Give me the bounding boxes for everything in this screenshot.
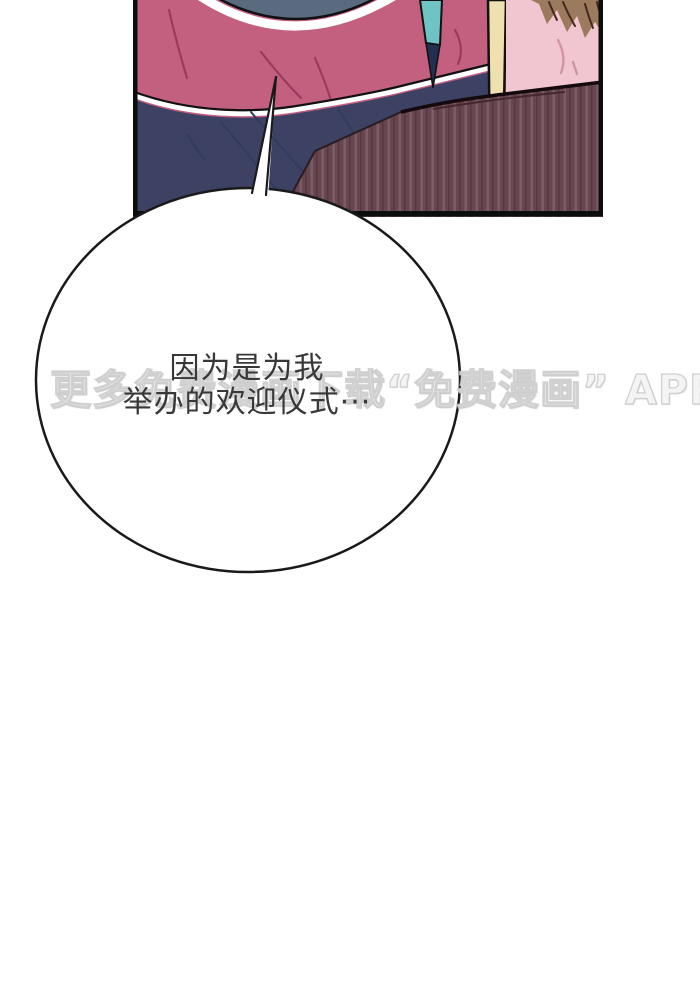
panel-border-left xyxy=(133,0,138,216)
speech-bubble-text: 因为是为我 举办的欢迎仪式··· xyxy=(47,352,447,420)
panel-border-right xyxy=(599,0,604,216)
comic-panel xyxy=(133,0,603,217)
comic-page: 更多免费漫画下载“免费漫画” APP。 因为是为我 举办的欢迎仪式··· xyxy=(0,0,700,984)
speech-text-line2: 举办的欢迎仪式··· xyxy=(47,386,447,420)
comic-artwork xyxy=(0,0,700,984)
speech-text-line1: 因为是为我 xyxy=(47,352,447,386)
